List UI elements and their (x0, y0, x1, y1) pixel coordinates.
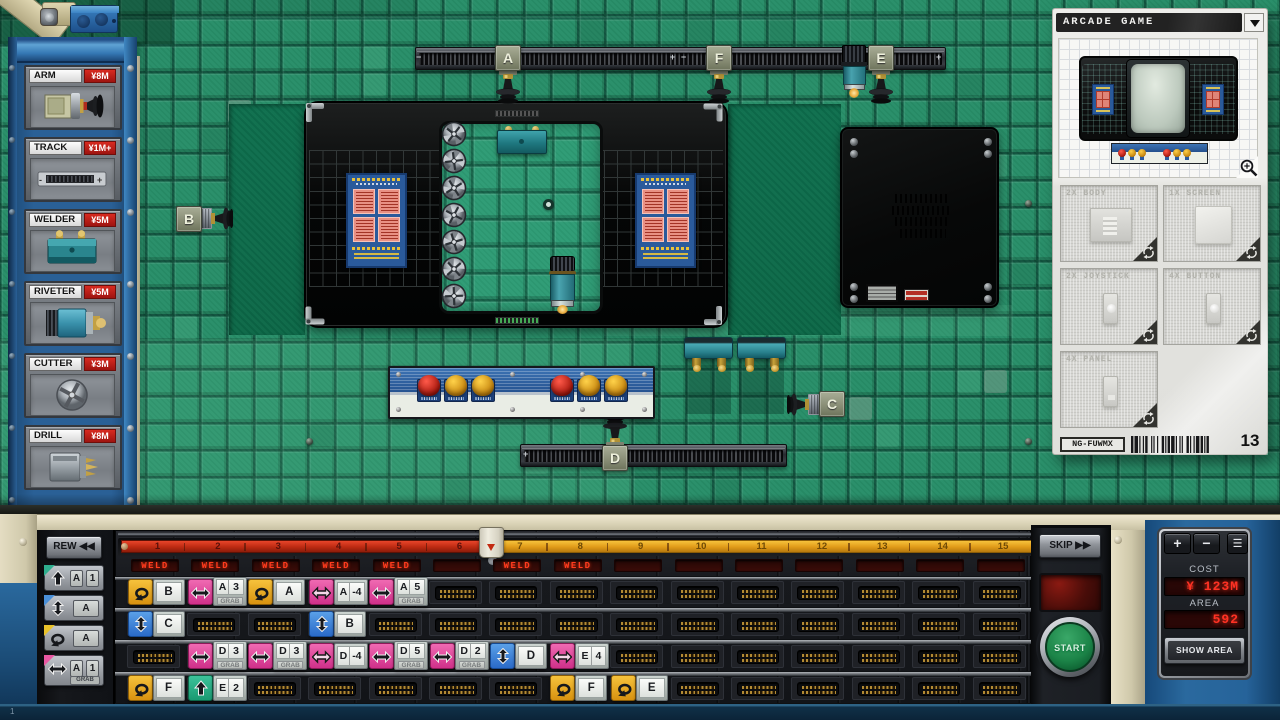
svg-text:+: + (97, 175, 102, 185)
svg-text:-: - (39, 175, 42, 185)
